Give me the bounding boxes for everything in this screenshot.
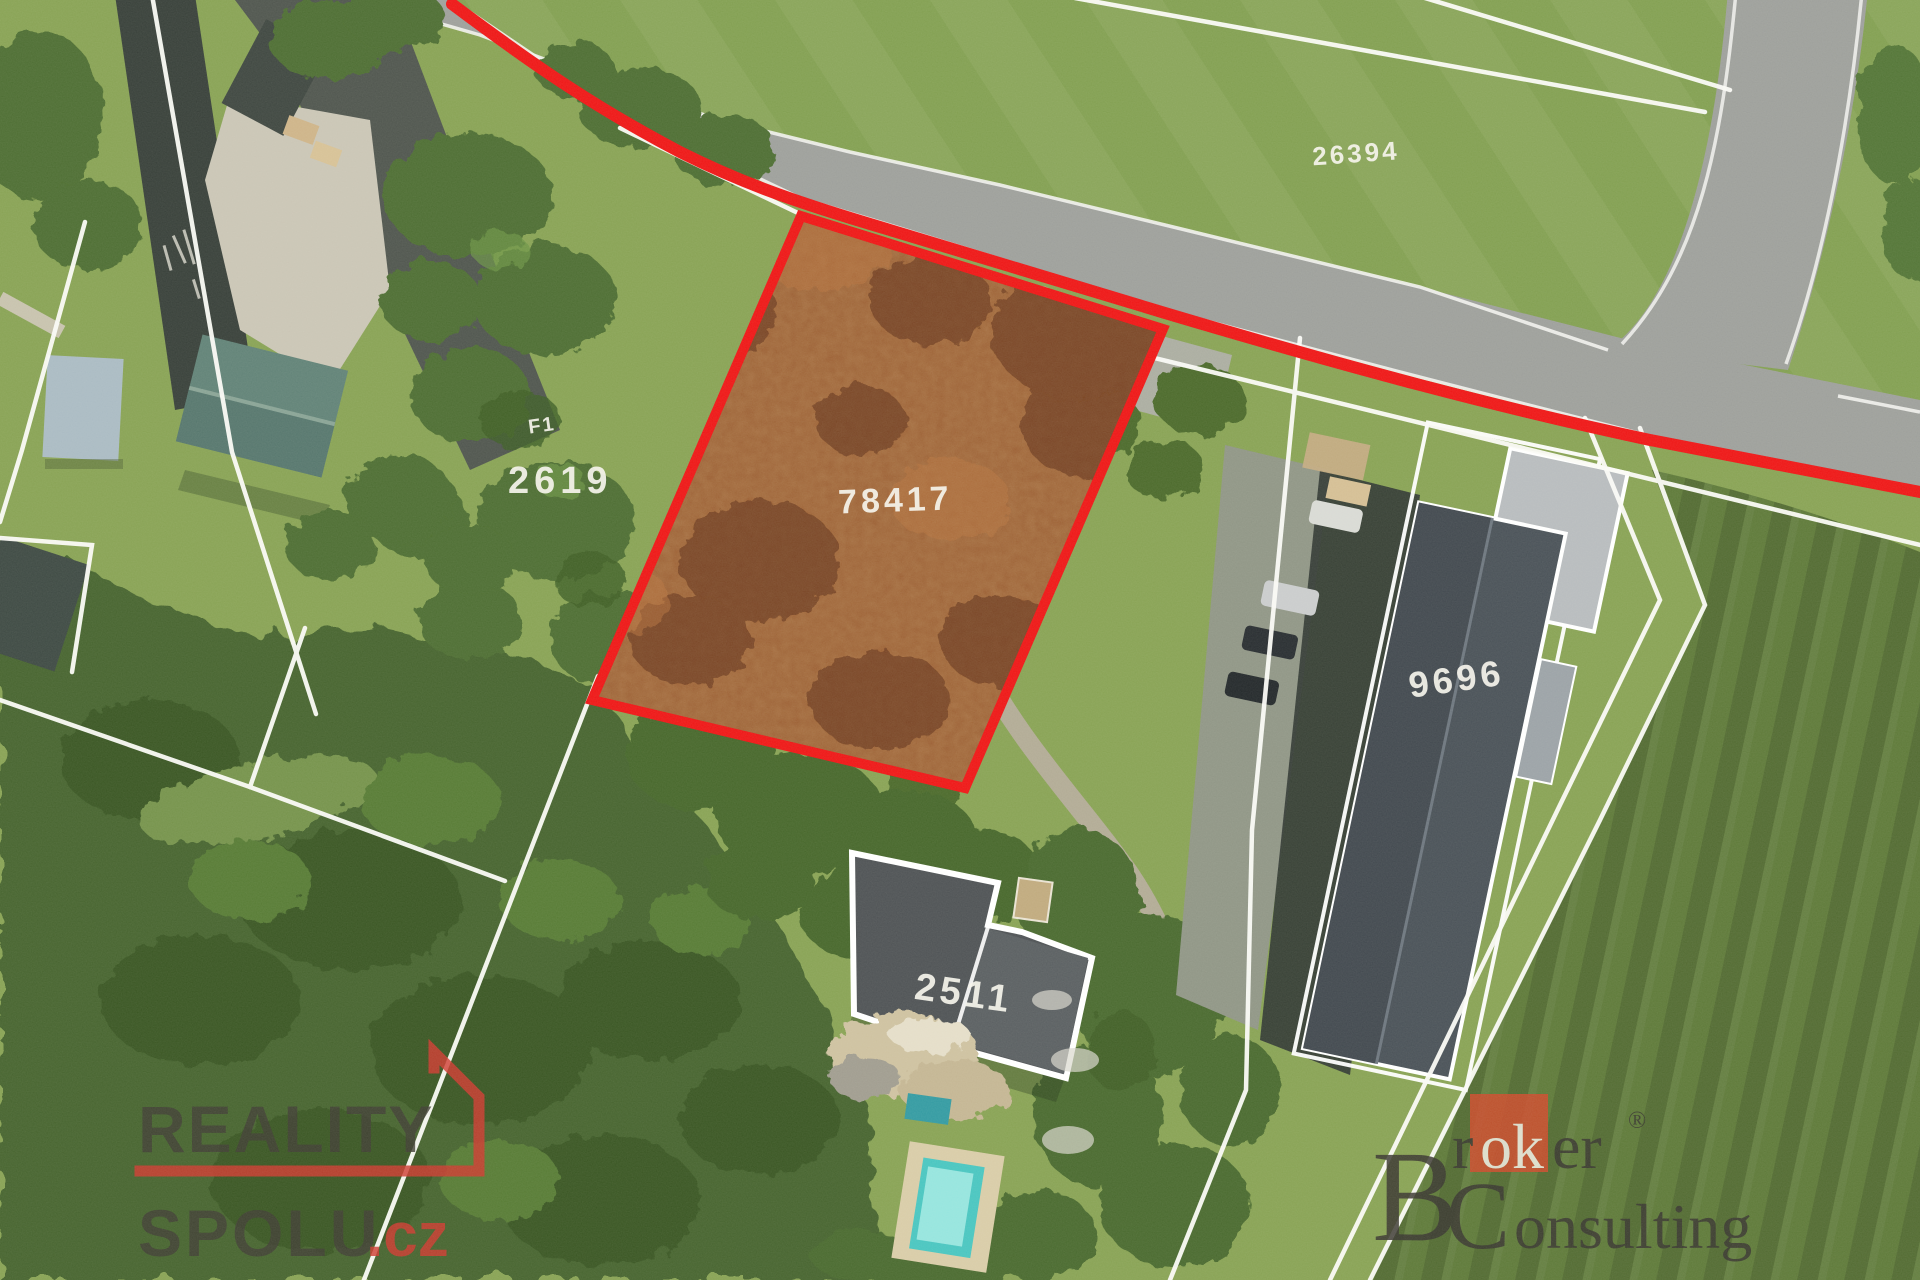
aerial-map-canvas: 26394 2619 F1 78417 9696 2511 REALITY SP… bbox=[0, 0, 1920, 1280]
aerial-map: 26394 2619 F1 78417 9696 2511 REALITY SP… bbox=[0, 0, 1920, 1280]
photo-grain-overlay bbox=[0, 0, 1920, 1280]
